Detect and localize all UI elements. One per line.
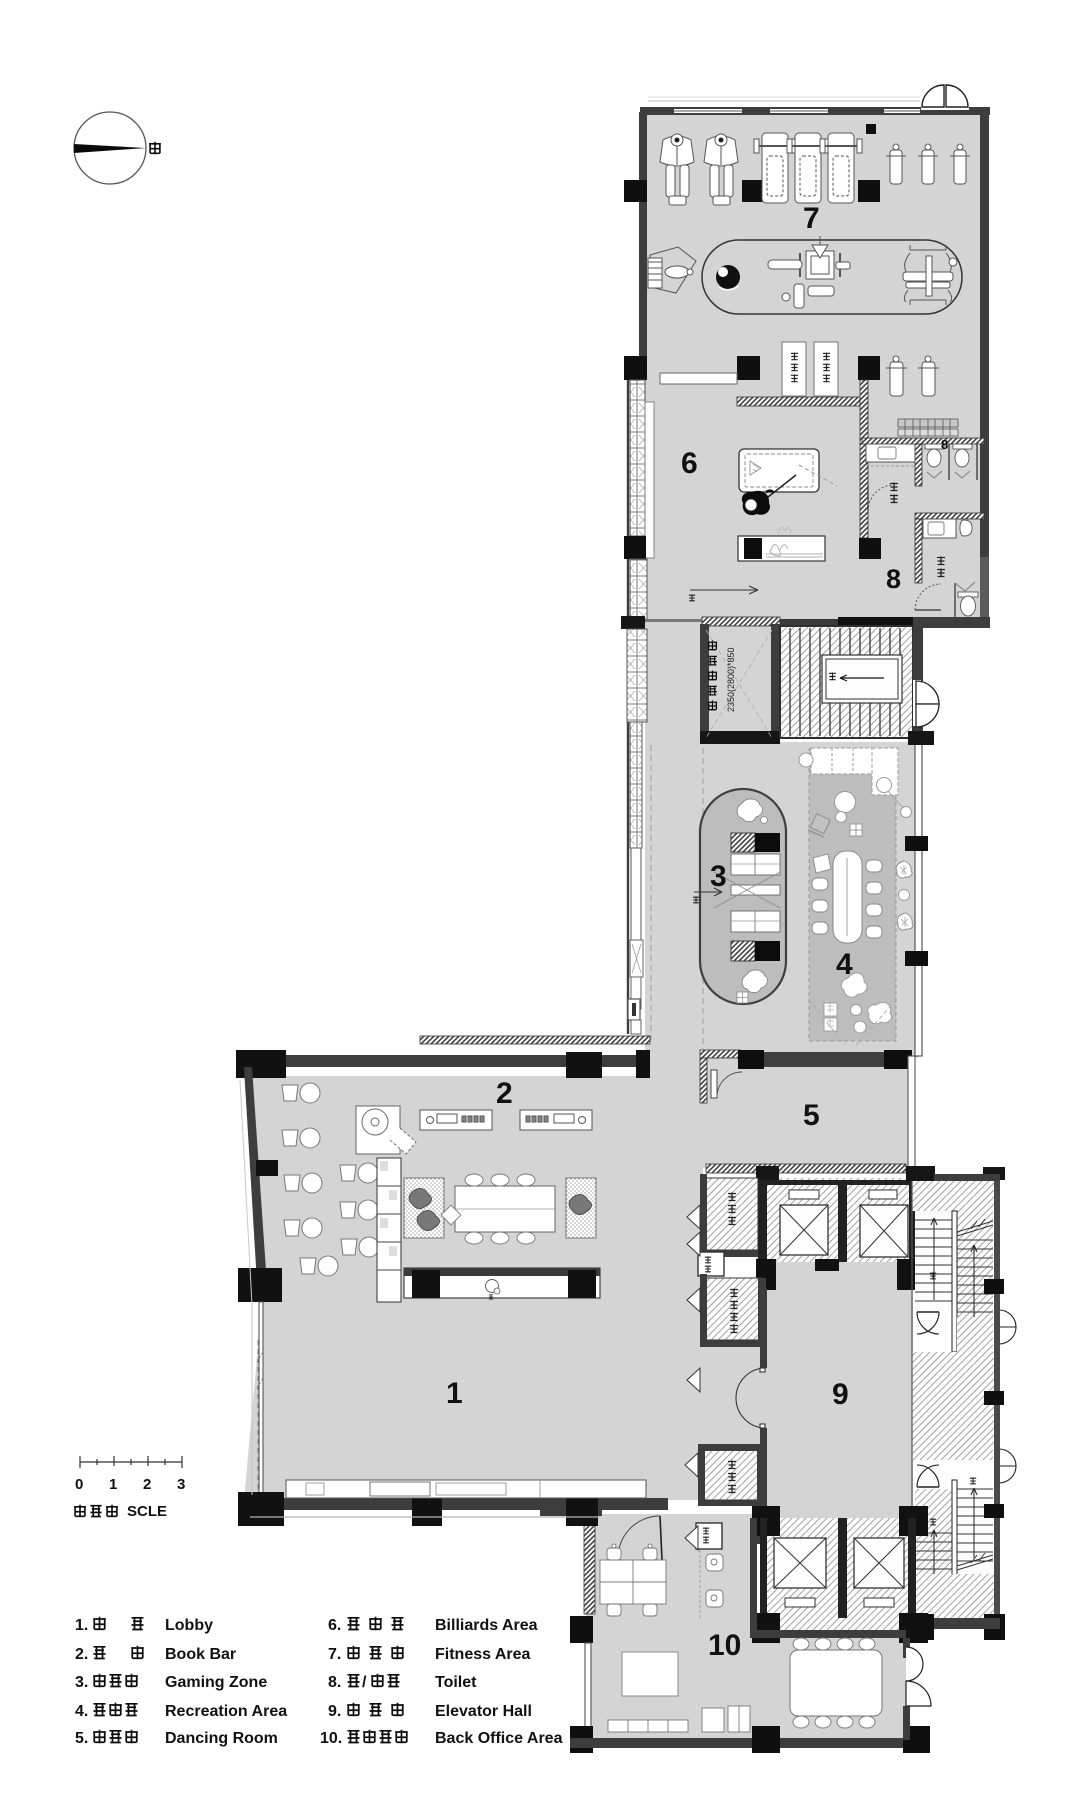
svg-text:Back Office Area: Back Office Area <box>435 1730 563 1747</box>
svg-text:4: 4 <box>836 948 853 981</box>
svg-text:6.: 6. <box>328 1617 341 1634</box>
svg-text:2350(2800)*850: 2350(2800)*850 <box>726 647 736 712</box>
svg-text:Dancing Room: Dancing Room <box>165 1730 278 1747</box>
svg-text:Recreation Area: Recreation Area <box>165 1703 287 1720</box>
svg-text:Fitness Area: Fitness Area <box>435 1646 531 1663</box>
svg-text:2: 2 <box>496 1077 513 1110</box>
svg-text:3.: 3. <box>75 1674 88 1691</box>
svg-text:5.: 5. <box>75 1730 88 1747</box>
svg-text:SCLE: SCLE <box>127 1503 167 1520</box>
svg-text:Elevator Hall: Elevator Hall <box>435 1703 532 1720</box>
svg-text:4.: 4. <box>75 1703 88 1720</box>
svg-text:7: 7 <box>803 202 820 235</box>
svg-text:9: 9 <box>832 1378 849 1411</box>
svg-text:2.: 2. <box>75 1646 88 1663</box>
svg-text:3: 3 <box>710 860 727 893</box>
svg-text:Billiards Area: Billiards Area <box>435 1617 538 1634</box>
svg-text:Toilet: Toilet <box>435 1674 477 1691</box>
svg-text:6: 6 <box>681 447 698 480</box>
svg-text:Book Bar: Book Bar <box>165 1646 236 1663</box>
svg-text:8: 8 <box>941 437 948 452</box>
svg-text:1: 1 <box>109 1476 117 1493</box>
svg-text:5: 5 <box>803 1099 820 1132</box>
svg-text:Lobby: Lobby <box>165 1617 213 1634</box>
svg-text:0: 0 <box>75 1476 83 1493</box>
svg-text:1.: 1. <box>75 1617 88 1634</box>
svg-text:Gaming Zone: Gaming Zone <box>165 1674 267 1691</box>
svg-text:/: / <box>362 1674 367 1691</box>
svg-text:8.: 8. <box>328 1674 341 1691</box>
svg-text:3: 3 <box>177 1476 185 1493</box>
svg-text:7.: 7. <box>328 1646 341 1663</box>
svg-text:1: 1 <box>446 1377 463 1410</box>
svg-text:10.: 10. <box>320 1730 342 1747</box>
svg-text:10: 10 <box>708 1629 741 1662</box>
svg-text:9.: 9. <box>328 1703 341 1720</box>
svg-text:2: 2 <box>143 1476 151 1493</box>
svg-text:8: 8 <box>886 564 901 594</box>
